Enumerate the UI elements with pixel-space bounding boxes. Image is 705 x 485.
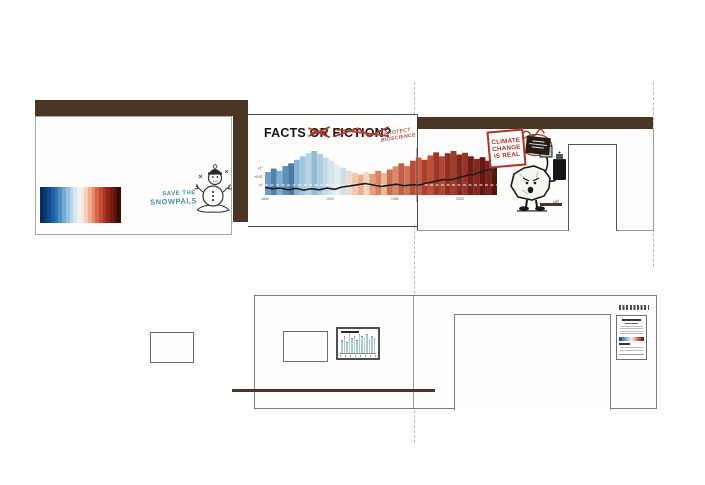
- mural-stripe: [480, 157, 486, 195]
- mural-stripe: [474, 159, 480, 195]
- mural-stripe: [462, 153, 468, 195]
- mural-stripe: [410, 161, 416, 195]
- mural-stripe: [387, 169, 393, 195]
- artist-signature: gbl: [553, 199, 559, 205]
- floor-accent-line: [232, 389, 435, 392]
- mini-chart-axis: [340, 355, 376, 357]
- headline-facts: FACTS: [264, 126, 310, 140]
- warming-stripes-chart: +1°+0.5°0°1880192019602000: [254, 146, 500, 204]
- barcode-stripe: [117, 187, 121, 223]
- mural-stripe: [265, 172, 271, 195]
- mural-stripe: [404, 166, 410, 195]
- x-tick-label: 1960: [391, 197, 399, 201]
- mini-chart-bars: [340, 334, 376, 354]
- logo-wordmark: [619, 305, 649, 310]
- left-wall-header-band: [35, 100, 248, 116]
- character-body: [511, 166, 550, 200]
- warming-stripes-barcode: [40, 187, 121, 223]
- mural-elevation-sheet: SAVE THE SNOWPALS FACTS OR FICTION? PROT…: [0, 0, 705, 485]
- mini-bar: [356, 340, 358, 353]
- advisory-stamp-icon: [525, 136, 551, 155]
- mural-stripe: [340, 168, 346, 195]
- mini-bar: [349, 334, 351, 353]
- climate-info-poster: [616, 315, 647, 360]
- mural-stripe: [282, 166, 288, 195]
- y-tick-label: +1°: [257, 166, 263, 170]
- mini-bar: [374, 338, 376, 353]
- x-tick-label: 1880: [261, 197, 269, 201]
- poster-title-bar: [622, 319, 641, 321]
- mural-stripe: [398, 163, 404, 195]
- poster-warming-stripes: [619, 337, 644, 341]
- doorway-opening-bottom: [454, 314, 611, 410]
- climate-sign: CLIMATE CHANGE IS REAL: [486, 128, 526, 168]
- mural-stripe: [352, 173, 358, 195]
- mini-chart-title-bar: [341, 331, 359, 333]
- mini-bar: [366, 334, 368, 353]
- headline: FACTS OR FICTION?: [264, 126, 392, 140]
- mini-bar: [361, 336, 363, 353]
- save-the-snowpals-text: SAVE THE SNOWPALS: [150, 190, 197, 207]
- frame-blank: [283, 331, 328, 362]
- mural-stripe: [346, 171, 352, 195]
- mini-bar: [364, 338, 366, 353]
- small-wall-rect: [150, 332, 194, 363]
- mural-stripe: [335, 164, 341, 195]
- mini-bar: [371, 336, 373, 353]
- mini-bar: [341, 340, 343, 353]
- mini-bar: [344, 336, 346, 353]
- mural-stripe: [422, 160, 428, 195]
- y-tick-label: 0°: [259, 183, 263, 187]
- y-tick-label: +0.5°: [254, 175, 263, 179]
- mini-bar: [359, 334, 361, 353]
- snowpals-line2: SNOWPALS: [150, 197, 196, 207]
- mural-stripe: [277, 171, 283, 195]
- mural-stripe: [445, 153, 451, 195]
- mural-stripe: [393, 166, 399, 195]
- mural-stripe: [439, 156, 445, 195]
- mural-stripe: [375, 171, 381, 195]
- x-tick-label: 1920: [326, 197, 334, 201]
- poster-subtitle-bar: [625, 323, 638, 324]
- poster-footer-bar: [619, 354, 644, 355]
- x-tick-label: 2000: [456, 197, 464, 201]
- mini-bar: [369, 340, 371, 353]
- framed-statistics-poster: [336, 327, 380, 360]
- mural-stripe: [427, 155, 433, 195]
- mini-bar: [354, 336, 356, 353]
- corner-column: [233, 116, 248, 222]
- mini-bar: [346, 342, 348, 353]
- sign-line3: IS REAL: [490, 151, 523, 161]
- mural-stripe: [271, 169, 277, 195]
- mural-stripe: [456, 155, 462, 195]
- mural-stripe: [381, 173, 387, 195]
- snowman-illustration: [195, 165, 231, 213]
- mural-stripe: [433, 152, 439, 195]
- poster-signature-bar: [619, 343, 630, 345]
- mural-stripe: [451, 151, 457, 195]
- mini-bar: [351, 338, 353, 353]
